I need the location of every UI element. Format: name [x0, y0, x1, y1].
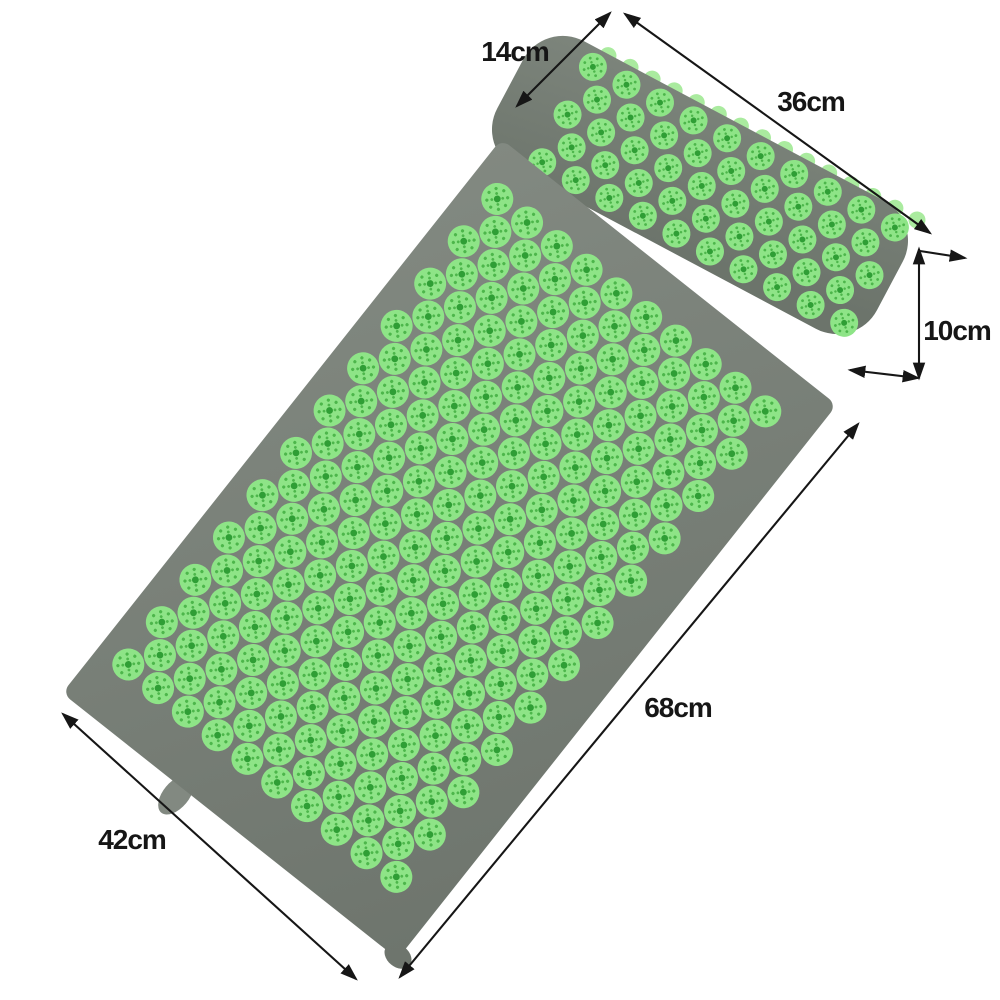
fringe-spike	[905, 208, 928, 231]
dim-label-pillow-height: 10cm	[923, 315, 991, 346]
acupressure-set-dimension-diagram: 14cm 36cm 10cm 68cm 42cm	[0, 0, 1000, 1000]
dim-label-mat-length: 68cm	[644, 692, 712, 723]
dim-label-pillow-length: 36cm	[777, 86, 845, 117]
dim-label-mat-width: 42cm	[98, 824, 166, 855]
pillow-height-extension-arrow-top	[920, 251, 965, 258]
diagram-canvas: 14cm 36cm 10cm 68cm 42cm	[0, 0, 1000, 1000]
dim-label-pillow-depth: 14cm	[481, 36, 549, 67]
pillow-height-extension-arrow-bottom	[850, 370, 918, 378]
